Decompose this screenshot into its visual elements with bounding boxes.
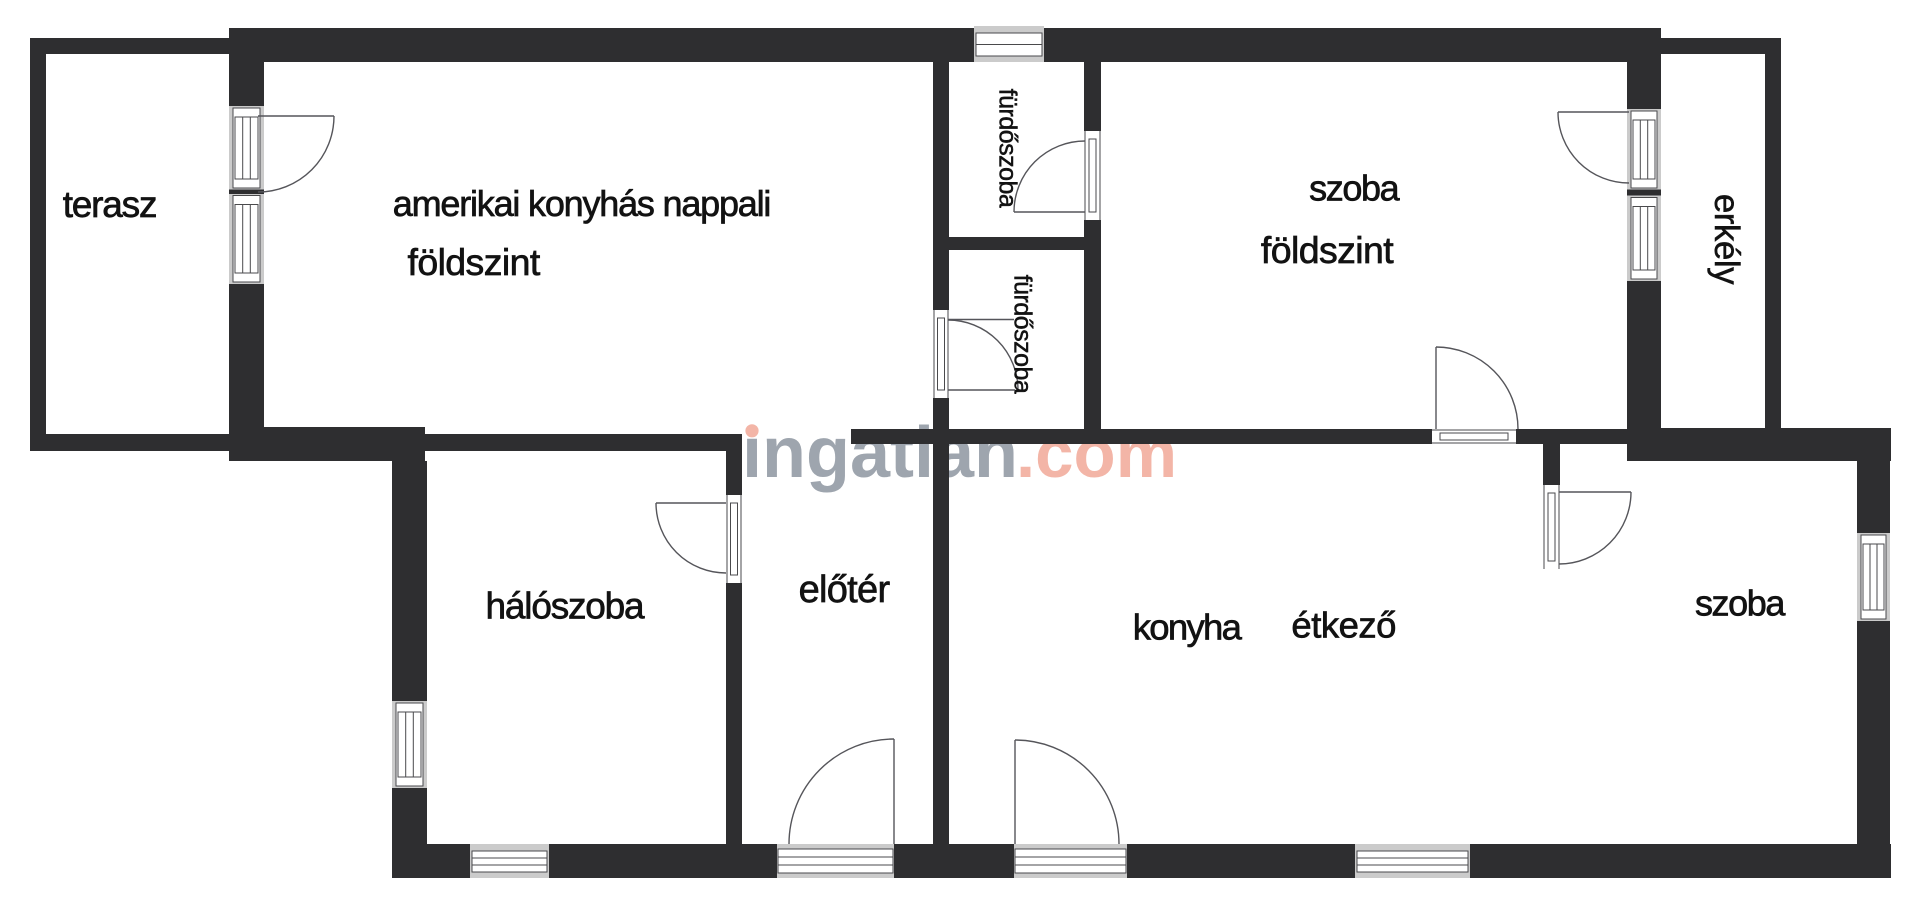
svg-text:földszint: földszint	[1261, 229, 1394, 271]
svg-text:szoba: szoba	[1695, 583, 1786, 624]
svg-text:földszint: földszint	[408, 241, 541, 283]
svg-text:hálószoba: hálószoba	[486, 586, 646, 627]
svg-text:terasz: terasz	[63, 184, 157, 225]
svg-text:előtér: előtér	[799, 569, 891, 611]
svg-text:szoba: szoba	[1309, 168, 1400, 209]
svg-text:amerikai konyhás nappali: amerikai konyhás nappali	[393, 183, 770, 224]
svg-text:konyha: konyha	[1133, 606, 1243, 647]
svg-text:erkély: erkély	[1707, 194, 1746, 285]
svg-text:ıngatlan.com: ıngatlan.com	[742, 413, 1177, 493]
svg-text:fürdőszoba: fürdőszoba	[993, 89, 1021, 208]
svg-text:étkező: étkező	[1291, 605, 1396, 646]
svg-text:fürdőszoba: fürdőszoba	[1008, 275, 1036, 394]
